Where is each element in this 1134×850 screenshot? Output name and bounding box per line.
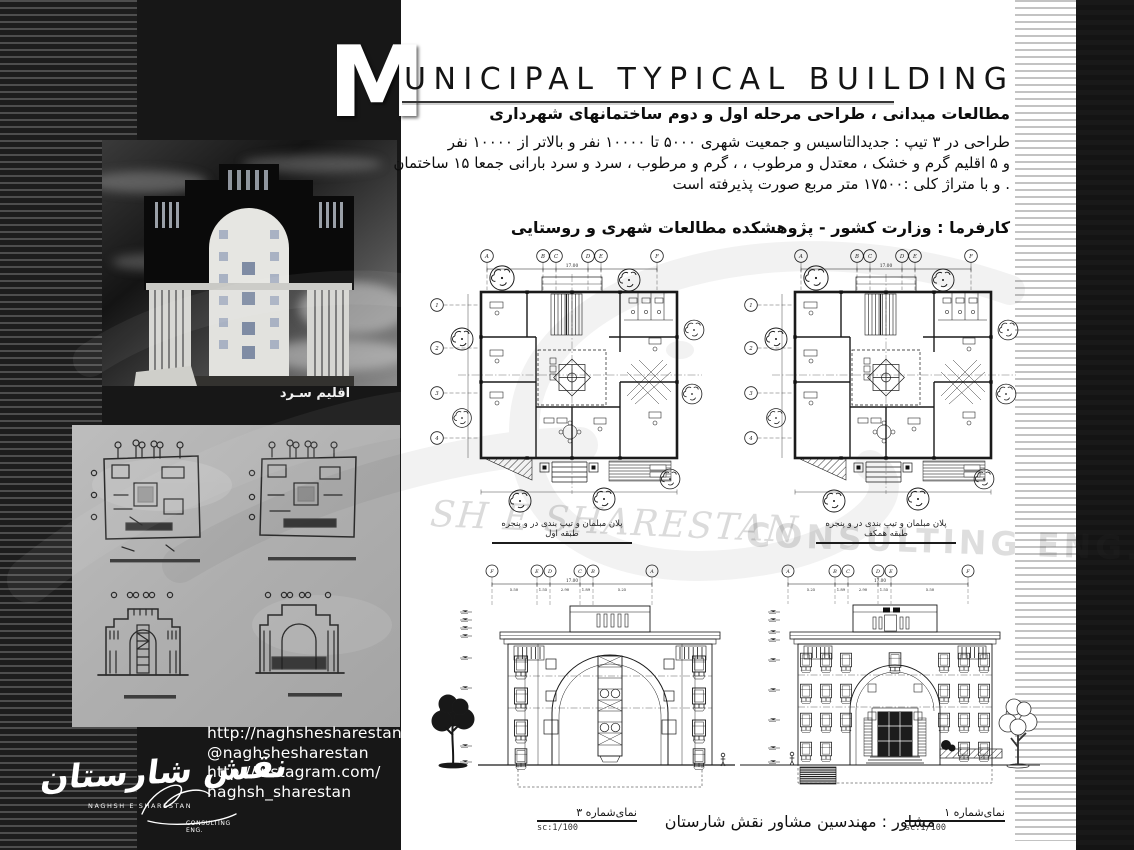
elev3-dim: 1.89 <box>582 587 591 592</box>
elev3-dim: 1.55 <box>539 587 548 592</box>
elevation-drawing-3: F E D C B A 17.00 5.50 1.55 2.90 1.89 5.… <box>420 560 760 805</box>
stripe-column-sketch <box>0 427 72 727</box>
plan1-caption: پلان مبلمان و تیپ بندی در و پنجره طبقه ا… <box>492 519 632 544</box>
elev1-grid-letter: E <box>888 569 893 575</box>
elev1-grid-letter: F <box>965 569 970 575</box>
building-render-image <box>102 140 397 386</box>
elev1-total-dim: 17.00 <box>874 578 886 583</box>
elev1-dim: 1.55 <box>880 587 889 592</box>
elev3-grid-letter: B <box>590 569 595 575</box>
logo-consulting-text: CONSULTING ENG. <box>186 820 246 834</box>
right-black-bar <box>1076 0 1134 850</box>
project-description: مطالعات میدانی ، طراحی مرحله اول و دوم س… <box>390 104 1010 237</box>
elev1-grid-letter: C <box>846 569 850 575</box>
floor-plan-ground-floor <box>738 242 1048 520</box>
elev3-dim: 5.25 <box>618 587 627 592</box>
plan2-caption: پلان مبلمان و تیپ بندی در و پنجره طبقه ه… <box>816 519 956 544</box>
elev1-dim: 1.89 <box>837 587 846 592</box>
elev3-dim: 2.90 <box>561 587 570 592</box>
client-line: کارفرما : وزارت کشور - پژوهشکده مطالعات … <box>390 218 1010 237</box>
elev3-total-dim: 17.00 <box>566 578 578 583</box>
portfolio-sheet: A B C D E F 1 2 3 4 17.00 <box>0 0 1134 850</box>
elev1-grid-letter: B <box>832 569 837 575</box>
elev1-grid-letter: D <box>875 569 880 575</box>
elev1-dim: 5.25 <box>807 587 816 592</box>
title-underline <box>402 101 894 103</box>
description-line: طراحی در ۳ تیپ : جدیدالتاسیس و جمعیت شهر… <box>390 132 1010 153</box>
elev3-grid-letter: F <box>489 569 494 575</box>
elev1-grid-letter: A <box>785 569 790 575</box>
concept-sketches-image <box>72 425 400 727</box>
description-line: و ۵ اقلیم گرم و خشک ، معتدل و مرطوب ، ، … <box>390 153 1010 174</box>
description-line: . و با متراژ کلی :۱۷۵۰۰ متر مربع صورت پذ… <box>390 174 1010 195</box>
stripe-column-mid <box>0 140 102 427</box>
website-url: http://naghshesharestan.com <box>207 724 441 744</box>
elev3-grid-letter: D <box>547 569 552 575</box>
company-logo: نقش شارستان NAGHSH E SHARESTAN CONSULTIN… <box>36 750 246 845</box>
elevation3-caption: نمای‌شماره ۳ sc:1/100 <box>537 806 637 833</box>
elev3-grid-letter: E <box>534 569 539 575</box>
elev3-dim: 5.50 <box>510 587 519 592</box>
page-title: UNICIPAL TYPICAL BUILDING <box>404 62 1015 97</box>
elev1-dim: 5.50 <box>926 587 935 592</box>
floor-plan-first-floor <box>424 242 734 520</box>
description-heading: مطالعات میدانی ، طراحی مرحله اول و دوم س… <box>390 104 1010 123</box>
elev3-grid-letter: C <box>578 569 582 575</box>
elevation3-label: نمای‌شماره ۳ <box>537 806 637 822</box>
stripe-block-top-left <box>0 0 137 140</box>
consultant-credit: مشاور : مهندسین مشاور نقش شارستان <box>640 812 960 831</box>
elev3-grid-letter: A <box>649 569 654 575</box>
elev1-dim: 2.90 <box>859 587 868 592</box>
elevation-drawing-1: A B C D E F 17.00 5.25 1.89 2.90 1.55 5.… <box>740 560 1040 805</box>
elevation3-scale: sc:1/100 <box>537 822 637 833</box>
render-caption: اقلیم سـرد <box>240 386 390 401</box>
